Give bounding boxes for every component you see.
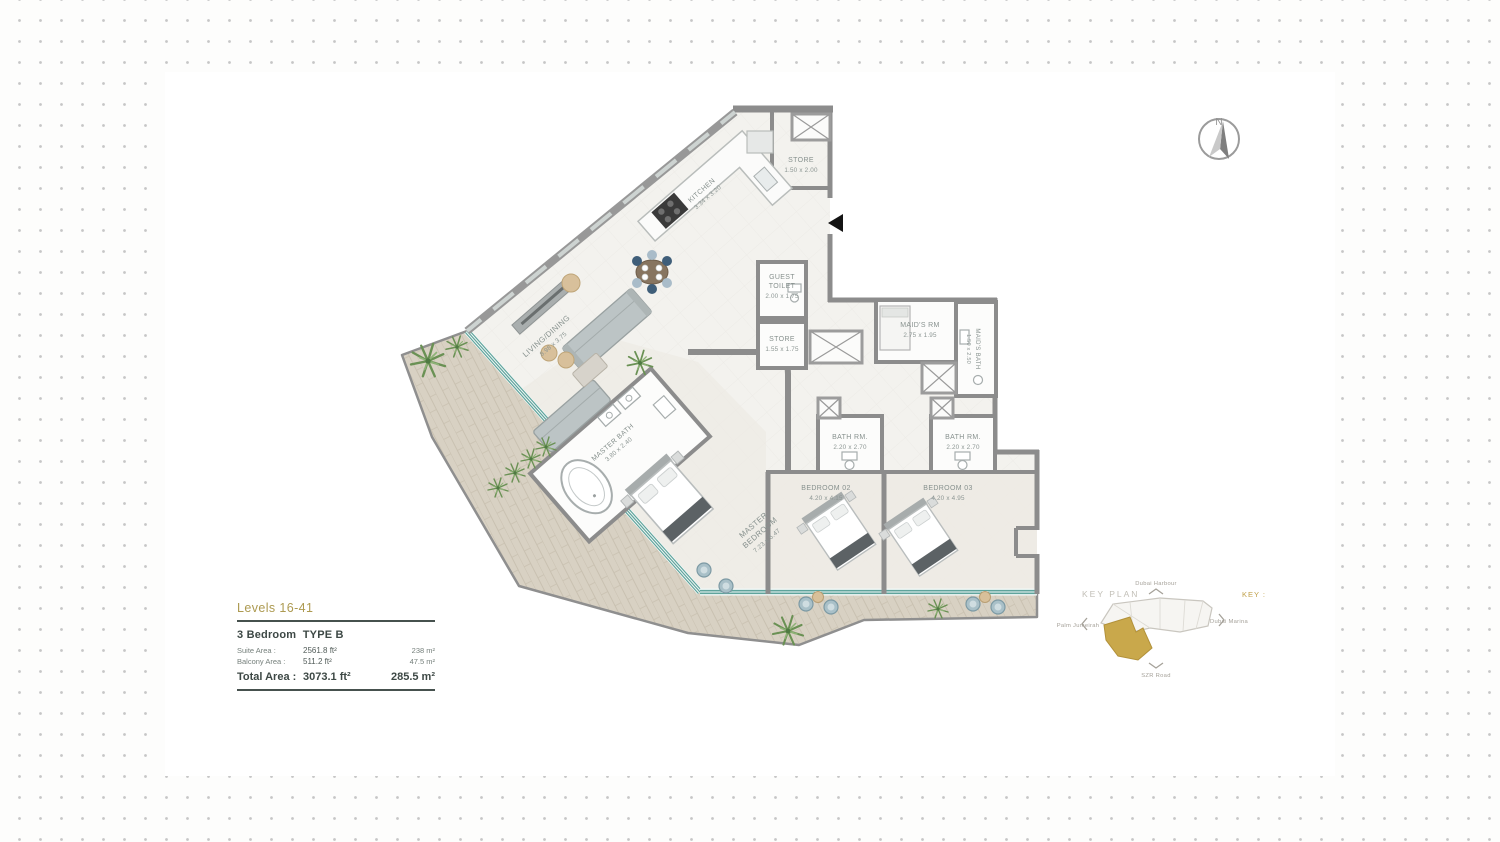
svg-text:1.50 x 2.00: 1.50 x 2.00 — [784, 167, 818, 174]
legend-row-suite: Suite Area : 2561.8 ft² 238 m² — [237, 645, 435, 656]
suite-area-ft: 2561.8 ft² — [303, 645, 373, 656]
room-label-guest-toilet: GUEST — [769, 274, 795, 281]
compass: N — [1199, 117, 1239, 159]
entry-arrow-icon — [828, 214, 843, 232]
room-label-bedroom-02: BEDROOM 02 — [801, 485, 850, 492]
fridge — [747, 131, 773, 153]
room-label-maids-bath: MAID'S BATH — [974, 328, 980, 369]
floor-plan-svg: LIVING/DINING 8.98 x 3.75 KITCHEN 3.34 x… — [0, 0, 1500, 842]
room-label-store-hall: STORE — [769, 336, 795, 343]
key-plan-west-label: Palm Jumeirah — [1057, 623, 1100, 629]
key-plan: KEY PLAN KEY : Dubai Harbour SZR Road Pa… — [1057, 581, 1266, 679]
room-store-hall — [758, 322, 806, 368]
room-label-bedroom-03: BEDROOM 03 — [923, 485, 972, 492]
room-label-store-top: STORE — [788, 157, 814, 164]
suite-area-m: 238 m² — [373, 645, 435, 656]
chevron-up-icon — [1149, 589, 1163, 594]
balcony-area-m: 47.5 m² — [373, 656, 435, 667]
room-label-maids-room: MAID'S RM — [900, 322, 940, 329]
svg-text:4.20 x 4.15: 4.20 x 4.15 — [809, 495, 843, 502]
total-area-m: 285.5 m² — [373, 671, 435, 683]
svg-text:2.20 x 2.70: 2.20 x 2.70 — [833, 444, 867, 451]
legend-unit-type: 3 Bedroom TYPE B — [237, 629, 435, 641]
suite-area-label: Suite Area : — [237, 645, 303, 656]
legend: Levels 16-41 3 Bedroom TYPE B Suite Area… — [237, 601, 435, 691]
balcony-area-label: Balcony Area : — [237, 656, 303, 667]
total-area-label: Total Area : — [237, 671, 303, 683]
key-plan-key-label: KEY : — [1242, 590, 1266, 599]
chevron-down-icon — [1149, 663, 1163, 668]
key-plan-south-label: SZR Road — [1141, 673, 1170, 679]
svg-text:1.55 x 1.75: 1.55 x 1.75 — [765, 346, 799, 353]
legend-row-total: Total Area : 3073.1 ft² 285.5 m² — [237, 671, 435, 691]
key-plan-north-label: Dubai Harbour — [1135, 581, 1177, 587]
total-area-ft: 3073.1 ft² — [303, 671, 373, 683]
room-label-bath-1: BATH RM. — [832, 434, 868, 441]
room-label-bath-2: BATH RM. — [945, 434, 981, 441]
key-plan-east-label: Dubai Marina — [1210, 619, 1249, 625]
svg-text:2.75 x 1.95: 2.75 x 1.95 — [903, 332, 937, 339]
svg-text:2.20 x 2.70: 2.20 x 2.70 — [946, 444, 980, 451]
legend-row-balcony: Balcony Area : 511.2 ft² 47.5 m² — [237, 656, 435, 667]
svg-text:TOILET: TOILET — [769, 283, 796, 290]
svg-text:2.00 x 1.75: 2.00 x 1.75 — [765, 293, 799, 300]
page: LIVING/DINING 8.98 x 3.75 KITCHEN 3.34 x… — [0, 0, 1500, 842]
svg-text:4.20 x 4.95: 4.20 x 4.95 — [931, 495, 965, 502]
dining-set — [632, 250, 672, 294]
legend-levels: Levels 16-41 — [237, 601, 435, 622]
key-plan-title: KEY PLAN — [1082, 589, 1139, 599]
svg-text:1.50 x 2.50: 1.50 x 2.50 — [965, 334, 971, 364]
balcony-area-ft: 511.2 ft² — [303, 656, 373, 667]
